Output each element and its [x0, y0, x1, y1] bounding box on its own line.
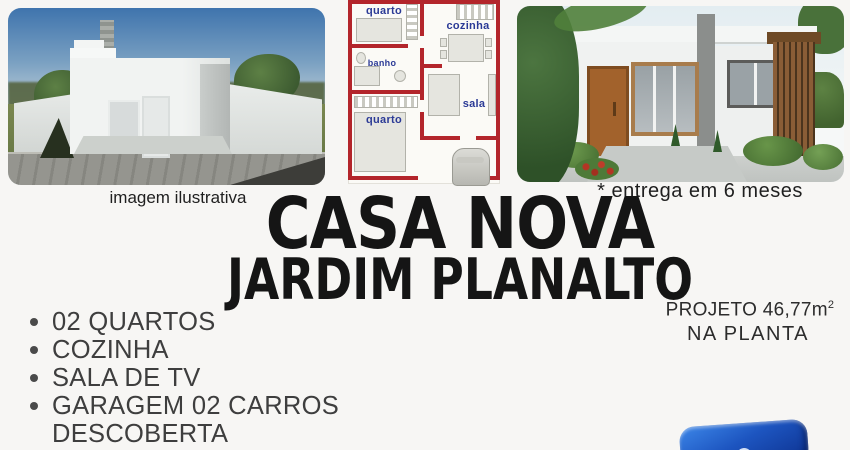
room-label-quarto-2: quarto: [360, 114, 408, 126]
floorplan: quarto cozinha banho quarto sala: [348, 0, 500, 184]
area-superscript: 2: [828, 299, 834, 311]
chair: [485, 50, 492, 59]
main-title: CASA NOVA: [125, 193, 796, 255]
project-area-text: PROJETO 46,77m: [666, 299, 828, 320]
feature-item: GARAGEM 02 CARROS DESCOBERTA: [24, 392, 380, 448]
wall: [348, 176, 418, 180]
room-label-sala: sala: [454, 98, 494, 110]
feature-item: SALA DE TV: [24, 364, 380, 392]
room-label-cozinha: cozinha: [442, 20, 494, 32]
feature-item: 02 QUARTOS: [24, 308, 380, 336]
concrete-column: [697, 14, 715, 160]
room-label-banho: banho: [360, 58, 404, 68]
chair: [440, 50, 447, 59]
wall: [496, 0, 500, 180]
project-status: NA PLANTA: [650, 323, 846, 346]
bullet-dot: [30, 346, 38, 354]
flower-bush: [575, 158, 619, 180]
wall: [420, 0, 424, 36]
wall: [490, 176, 500, 180]
kitchen-counter: [456, 4, 494, 20]
house-street-photo: [8, 8, 325, 185]
window-mullion: [653, 66, 656, 132]
subtitle: JARDIM PLANALTO: [148, 255, 772, 305]
bed: [356, 18, 402, 42]
bullet-dot: [30, 318, 38, 326]
facade-window: [108, 100, 140, 138]
feature-text: 02 QUARTOS: [52, 308, 216, 336]
shower: [354, 66, 380, 86]
wall: [348, 90, 424, 94]
wall: [348, 44, 408, 48]
bush: [743, 136, 803, 166]
bullet-dot: [30, 402, 38, 410]
feature-item: COZINHA: [24, 336, 380, 364]
wall: [424, 136, 460, 140]
window-mullion: [754, 63, 757, 105]
feature-text: SALA DE TV: [52, 364, 201, 392]
bush: [803, 144, 843, 170]
contact-button[interactable]: [679, 419, 810, 450]
real-estate-flyer: imagem ilustrativa quarto: [0, 0, 850, 450]
wardrobe: [354, 96, 418, 108]
palm-foliage: [517, 6, 579, 182]
wall: [476, 136, 496, 140]
sink: [394, 70, 406, 82]
project-area: PROJETO 46,77m2: [650, 299, 850, 321]
chair: [485, 38, 492, 47]
wall: [424, 64, 442, 68]
car-top-view: [452, 148, 490, 186]
feature-list: 02 QUARTOS COZINHA SALA DE TV GARAGEM 02…: [24, 308, 380, 450]
bullet-dot: [30, 374, 38, 382]
feature-text: GARAGEM 02 CARROS DESCOBERTA: [52, 392, 339, 448]
driveway: [74, 136, 232, 154]
chair: [440, 38, 447, 47]
window-mullion: [673, 66, 676, 132]
dining-table: [448, 34, 484, 62]
window-left: [631, 62, 699, 136]
room-label-quarto-1: quarto: [360, 5, 408, 17]
feature-text: COZINHA: [52, 336, 169, 364]
door-handle: [613, 102, 616, 116]
house-render-photo: [517, 6, 844, 182]
